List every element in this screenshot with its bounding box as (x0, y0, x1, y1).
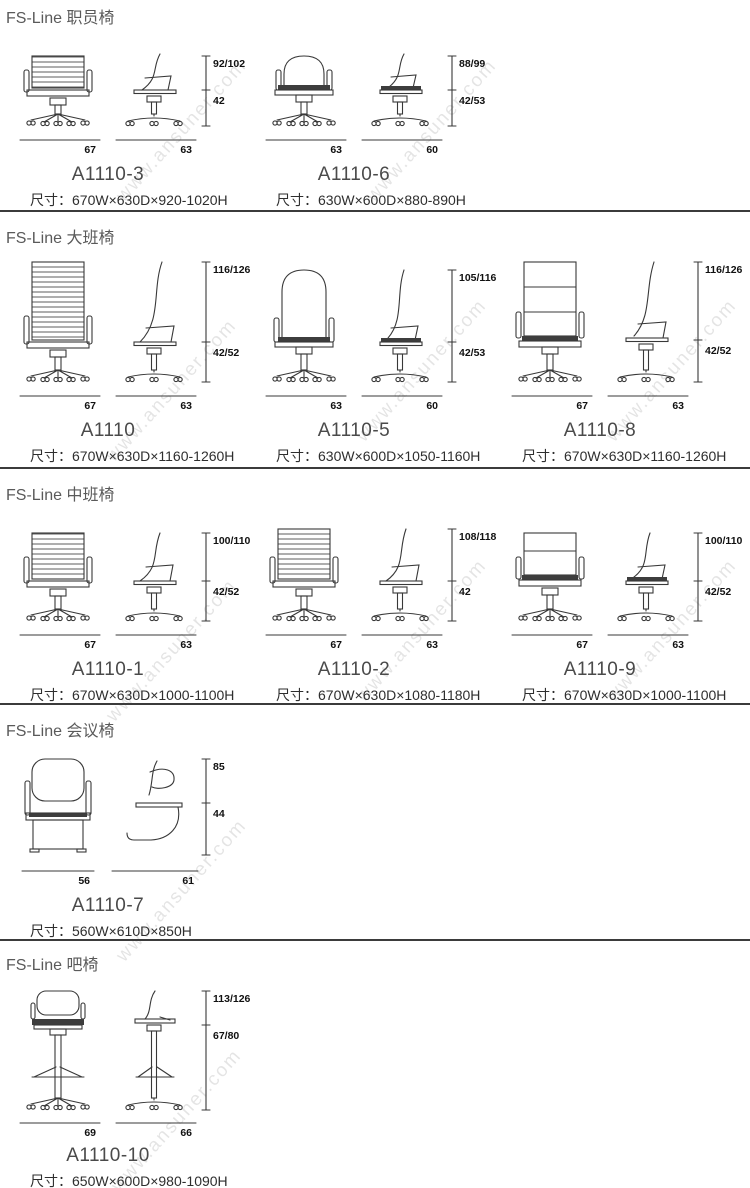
size-spec: 尺寸：670W×630D×1000-1100H (522, 685, 742, 705)
height-dimension: 116/126 (705, 264, 743, 276)
chair-drawing: 113/126 67/80 69 66 (6, 977, 250, 1143)
size-spec: 尺寸：670W×630D×1080-1180H (276, 685, 496, 705)
dimension-lines: 100/110 42/52 (202, 533, 251, 621)
width-dimensions: 67 63 (20, 396, 196, 412)
seat-height-dimension: 44 (213, 808, 225, 820)
chair-side-view (127, 761, 182, 840)
size-spec: 尺寸：670W×630D×1160-1260H (522, 446, 742, 466)
model-number: A1110-1 (16, 659, 200, 681)
section-title: FS-Line 职员椅 (6, 4, 750, 28)
size-spec: 尺寸：650W×600D×980-1090H (30, 1171, 250, 1188)
dimension-lines: 116/126 42/52 (694, 262, 743, 382)
model-number: A1110-5 (262, 420, 446, 442)
dimension-lines: 105/116 42/53 (448, 270, 497, 382)
chair-side-view (126, 54, 182, 126)
size-spec: 尺寸：670W×630D×920-1020H (30, 190, 250, 210)
chair-row: 92/102 42 67 63 A1110-3 尺寸：670W×630D×920… (6, 30, 750, 210)
side-width: 63 (180, 144, 192, 156)
chair-side-view (372, 270, 428, 382)
chair-drawing: 116/126 42/52 67 63 (6, 250, 250, 418)
section-midback-chairs: FS-Line 中班椅 (0, 467, 750, 703)
chair-front-view (25, 759, 91, 852)
front-width: 67 (84, 144, 96, 156)
section-executive-chairs: FS-Line 大班椅 (0, 210, 750, 467)
seat-height-dimension: 42/53 (459, 347, 485, 359)
chair-drawing: 88/99 42/53 63 60 (252, 30, 496, 162)
seat-height-dimension: 42/52 (705, 586, 731, 598)
model-number: A1110-7 (16, 895, 200, 917)
side-width: 63 (426, 639, 438, 651)
chair-card: 88/99 42/53 63 60 A1110-6 尺寸：630W×600D×8… (252, 30, 496, 210)
model-number: A1110-3 (16, 164, 200, 186)
height-dimension: 88/99 (459, 58, 485, 70)
chair-front-view (270, 529, 338, 621)
chair-front-view (24, 262, 92, 382)
section-title: FS-Line 大班椅 (6, 224, 750, 248)
dimension-lines: 116/126 42/52 (202, 262, 251, 382)
height-dimension: 105/116 (459, 272, 497, 284)
width-dimensions: 67 63 (512, 396, 688, 412)
chair-drawing: 100/110 42/52 67 63 (6, 507, 250, 657)
height-dimension: 85 (213, 761, 225, 773)
chair-drawing: 105/116 42/53 63 60 (252, 250, 496, 418)
side-width: 63 (672, 400, 684, 412)
height-dimension: 116/126 (213, 264, 251, 276)
size-spec: 尺寸：630W×600D×880-890H (276, 190, 496, 210)
seat-height-dimension: 42 (213, 95, 225, 107)
model-number: A1110-2 (262, 659, 446, 681)
chair-row: 85 44 56 61 A1110-7 尺寸：560W×610D×850H (6, 743, 750, 941)
front-width: 67 (84, 639, 96, 651)
height-dimension: 100/110 (705, 535, 743, 547)
width-dimensions: 63 60 (266, 140, 442, 156)
chair-card: 105/116 42/53 63 60 A1110-5 尺寸：630W×600D… (252, 250, 496, 466)
model-number: A1110-6 (262, 164, 446, 186)
chair-side-view (372, 529, 428, 621)
height-dimension: 108/118 (459, 531, 497, 543)
chair-card: 116/126 42/52 67 63 A1110 尺寸：670W×630D×1… (6, 250, 250, 466)
side-width: 60 (426, 144, 438, 156)
chair-front-view (516, 533, 584, 621)
front-width: 67 (576, 400, 588, 412)
height-dimension: 113/126 (213, 993, 251, 1005)
chair-row: 116/126 42/52 67 63 A1110 尺寸：670W×630D×1… (6, 250, 750, 466)
chair-card: 108/118 42 67 63 A1110-2 尺寸：670W×630D×10… (252, 507, 496, 705)
model-number: A1110 (16, 420, 200, 442)
chair-spec-sheet: www.ansuner.com www.ansuner.com www.ansu… (0, 0, 750, 1188)
front-width: 69 (84, 1127, 96, 1139)
dimension-lines: 85 44 (202, 759, 225, 855)
width-dimensions: 56 61 (22, 871, 198, 887)
width-dimensions: 67 63 (20, 635, 196, 651)
chair-side-view (126, 262, 182, 382)
chair-drawing: 85 44 56 61 (6, 743, 250, 893)
chair-drawing: 108/118 42 67 63 (252, 507, 496, 657)
section-title: FS-Line 会议椅 (6, 717, 750, 741)
seat-height-dimension: 42/53 (459, 95, 485, 107)
dimension-lines: 92/102 42 (202, 56, 245, 126)
width-dimensions: 69 66 (20, 1123, 196, 1139)
width-dimensions: 63 60 (266, 396, 442, 412)
dimension-lines: 88/99 42/53 (448, 56, 485, 126)
chair-front-view (273, 270, 335, 382)
chair-card: 116/126 42/52 67 63 A1110-8 尺寸：670W×630D… (498, 250, 742, 466)
chair-drawing: 92/102 42 67 63 (6, 30, 250, 162)
dimension-lines: 100/110 42/52 (694, 533, 743, 621)
model-number: A1110-10 (16, 1145, 200, 1167)
model-number: A1110-8 (508, 420, 692, 442)
chair-row: 113/126 67/80 69 66 A1110-10 尺寸：650W×600… (6, 977, 750, 1188)
front-width: 56 (78, 875, 90, 887)
chair-card: 113/126 67/80 69 66 A1110-10 尺寸：650W×600… (6, 977, 250, 1188)
height-dimension: 92/102 (213, 58, 245, 70)
side-width: 63 (672, 639, 684, 651)
seat-height-dimension: 67/80 (213, 1030, 239, 1042)
chair-side-view (618, 533, 674, 621)
chair-side-view (126, 533, 182, 621)
size-spec: 尺寸：670W×630D×1160-1260H (30, 446, 250, 466)
section-staff-chairs: FS-Line 职员椅 (0, 0, 750, 210)
chair-front-view (273, 56, 335, 126)
dimension-lines: 113/126 67/80 (202, 991, 251, 1110)
chair-side-view (372, 54, 428, 126)
seat-height-dimension: 42/52 (213, 347, 239, 359)
chair-card: 100/110 42/52 67 63 A1110-9 尺寸：670W×630D… (498, 507, 742, 705)
size-spec: 尺寸：560W×610D×850H (30, 921, 250, 941)
chair-card: 100/110 42/52 67 63 A1110-1 尺寸：670W×630D… (6, 507, 250, 705)
seat-height-dimension: 42/52 (213, 586, 239, 598)
height-dimension: 100/110 (213, 535, 251, 547)
chair-drawing: 116/126 42/52 67 63 (498, 250, 742, 418)
section-title: FS-Line 中班椅 (6, 481, 750, 505)
section-title: FS-Line 吧椅 (6, 951, 750, 975)
side-width: 60 (426, 400, 438, 412)
chair-drawing: 100/110 42/52 67 63 (498, 507, 742, 657)
width-dimensions: 67 63 (20, 140, 196, 156)
size-spec: 尺寸：630W×600D×1050-1160H (276, 446, 496, 466)
model-number: A1110-9 (508, 659, 692, 681)
side-width: 63 (180, 639, 192, 651)
front-width: 63 (330, 400, 342, 412)
chair-front-view (516, 262, 584, 382)
width-dimensions: 67 63 (266, 635, 442, 651)
chair-front-view (27, 991, 89, 1110)
section-conference-chairs: FS-Line 会议椅 (0, 703, 750, 939)
side-width: 66 (180, 1127, 192, 1139)
chair-front-view (24, 533, 92, 621)
chair-card: 85 44 56 61 A1110-7 尺寸：560W×610D×850H (6, 743, 250, 941)
width-dimensions: 67 63 (512, 635, 688, 651)
front-width: 67 (330, 639, 342, 651)
chair-side-view (126, 991, 182, 1110)
side-width: 61 (182, 875, 194, 887)
dimension-lines: 108/118 42 (448, 529, 497, 621)
side-width: 63 (180, 400, 192, 412)
chair-row: 100/110 42/52 67 63 A1110-1 尺寸：670W×630D… (6, 507, 750, 705)
front-width: 63 (330, 144, 342, 156)
seat-height-dimension: 42/52 (705, 345, 731, 357)
front-width: 67 (84, 400, 96, 412)
section-bar-stools: FS-Line 吧椅 (0, 939, 750, 1188)
chair-side-view (618, 262, 674, 382)
size-spec: 尺寸：670W×630D×1000-1100H (30, 685, 250, 705)
seat-height-dimension: 42 (459, 586, 471, 598)
chair-card: 92/102 42 67 63 A1110-3 尺寸：670W×630D×920… (6, 30, 250, 210)
chair-front-view (24, 56, 92, 126)
front-width: 67 (576, 639, 588, 651)
